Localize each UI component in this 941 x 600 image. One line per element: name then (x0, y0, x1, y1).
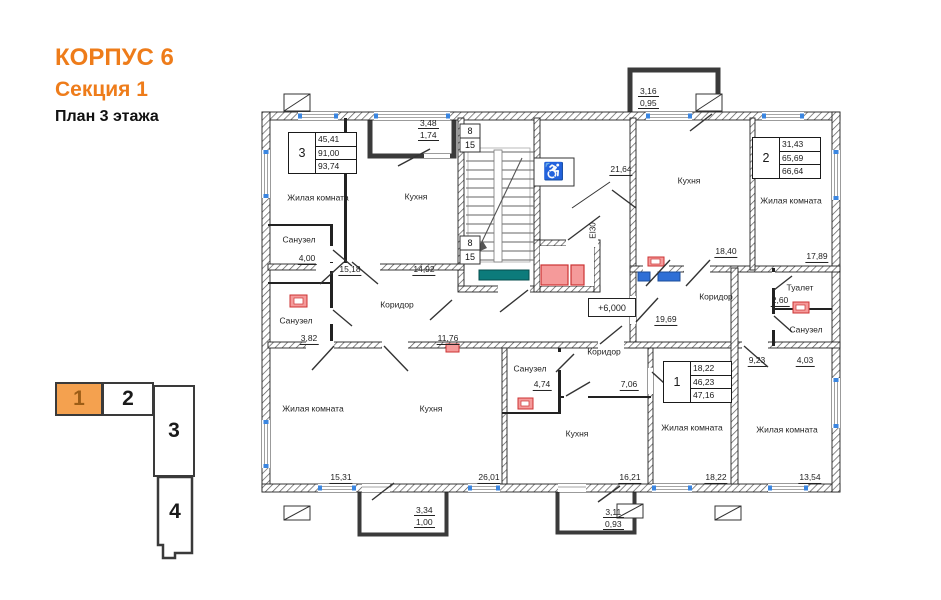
room-area: 11,76 (437, 333, 460, 345)
balcony-dimensions: 3,48 1,74 (418, 118, 439, 142)
room-area: 2,60 (771, 295, 790, 307)
key-plan-section-1-label: 1 (73, 387, 85, 411)
room-name: Жилая комната (285, 192, 351, 203)
apartment-area: 46,23 (691, 376, 731, 390)
apartment-number: 2 (753, 138, 779, 178)
balcony-length: 3,11 (603, 507, 624, 518)
elevation-mark: +6,000 (588, 298, 636, 317)
balcony-width: 0,93 (603, 519, 624, 530)
room-name: Кухня (405, 191, 428, 202)
balcony-dimensions: 3,34 1,00 (414, 505, 435, 529)
living-area: 45,41 (316, 133, 356, 147)
room-name: Санузел (789, 324, 822, 335)
hall-area: 21,64 (609, 164, 632, 176)
room-name: Санузел (513, 363, 546, 374)
room-area: 16,21 (618, 472, 641, 484)
room-name: Коридор (699, 291, 733, 302)
balcony-length: 3,48 (418, 118, 439, 129)
room-name: Санузел (279, 315, 312, 326)
key-plan-section-4[interactable]: 4 (158, 477, 192, 547)
total-area: 66,64 (780, 165, 820, 178)
key-plan-section-1[interactable]: 1 (55, 382, 103, 416)
stair-flight-width: 8 (467, 126, 472, 136)
room-name: Жилая комната (754, 424, 820, 435)
balcony-length: 3,34 (414, 505, 435, 516)
apartment-area: 91,00 (316, 147, 356, 161)
room-area: 4,03 (796, 355, 815, 367)
lobby-bench (479, 270, 529, 280)
stair-steps: 15 (465, 140, 475, 150)
kitchen-appliance (658, 272, 680, 281)
room-area: 15,18 (338, 264, 361, 276)
balcony-dimensions: 3,16 0,95 (638, 86, 659, 110)
key-plan-section-3[interactable]: 3 (153, 385, 195, 477)
entry-area: 19,69 (654, 314, 677, 326)
balcony-dimensions: 3,11 0,93 (603, 507, 624, 531)
balcony-width: 1,74 (418, 130, 439, 141)
living-area: 18,22 (691, 362, 731, 376)
wheelchair-icon: ♿ (543, 162, 564, 182)
key-plan-section-2-label: 2 (122, 387, 134, 411)
room-area: 14,92 (412, 264, 435, 276)
room-area: 18,22 (704, 472, 727, 484)
room-name: Кухня (566, 428, 589, 439)
room-name: Жилая комната (280, 403, 346, 414)
room-area: 4,74 (533, 379, 552, 391)
room-area: 3,82 (300, 333, 319, 345)
room-area: 15,31 (329, 472, 352, 484)
room-name: Коридор (380, 299, 414, 310)
balcony-width: 0,95 (638, 98, 659, 109)
room-area: 26,01 (477, 472, 500, 484)
total-area: 93,74 (316, 160, 356, 173)
balcony-width: 1,00 (414, 517, 435, 528)
room-area: 7,06 (620, 379, 639, 391)
key-plan-section-3-label: 3 (168, 419, 180, 443)
floor-plan-title: План 3 этажа (55, 108, 159, 126)
stair-flight-width: 8 (467, 238, 472, 248)
kitchen-appliance (638, 272, 650, 281)
living-area: 31,43 (780, 138, 820, 152)
room-name: Кухня (420, 403, 443, 414)
apartment-number: 1 (664, 362, 690, 402)
apartment-info-3: 3 45,41 91,00 93,74 (288, 132, 357, 174)
room-name: Санузел (282, 234, 315, 245)
room-name: Жилая комната (758, 195, 824, 206)
building-title: КОРПУС 6 (55, 44, 174, 72)
apartment-area: 65,69 (780, 152, 820, 166)
apartment-info-1: 1 18,22 46,23 47,16 (663, 361, 732, 403)
room-area: 13,54 (798, 472, 821, 484)
key-plan-section-4-label: 4 (169, 500, 181, 524)
elevator-fire-rating: EI30 (589, 214, 598, 248)
apartment-info-2: 2 31,43 65,69 66,64 (752, 137, 821, 179)
room-name: Жилая комната (659, 422, 725, 433)
key-plan-section-2[interactable]: 2 (102, 382, 154, 416)
balcony-length: 3,16 (638, 86, 659, 97)
room-name: Коридор (587, 346, 621, 357)
room-name: Кухня (678, 175, 701, 186)
room-area: 18,40 (714, 246, 737, 258)
room-area: 17,89 (805, 251, 828, 263)
section-title: Секция 1 (55, 78, 148, 102)
stair-steps: 15 (465, 252, 475, 262)
room-name: Туалет (787, 282, 814, 293)
apartment-number: 3 (289, 133, 315, 173)
total-area: 47,16 (691, 389, 731, 402)
room-area: 4,00 (298, 253, 317, 265)
room-area: 9,23 (748, 355, 767, 367)
